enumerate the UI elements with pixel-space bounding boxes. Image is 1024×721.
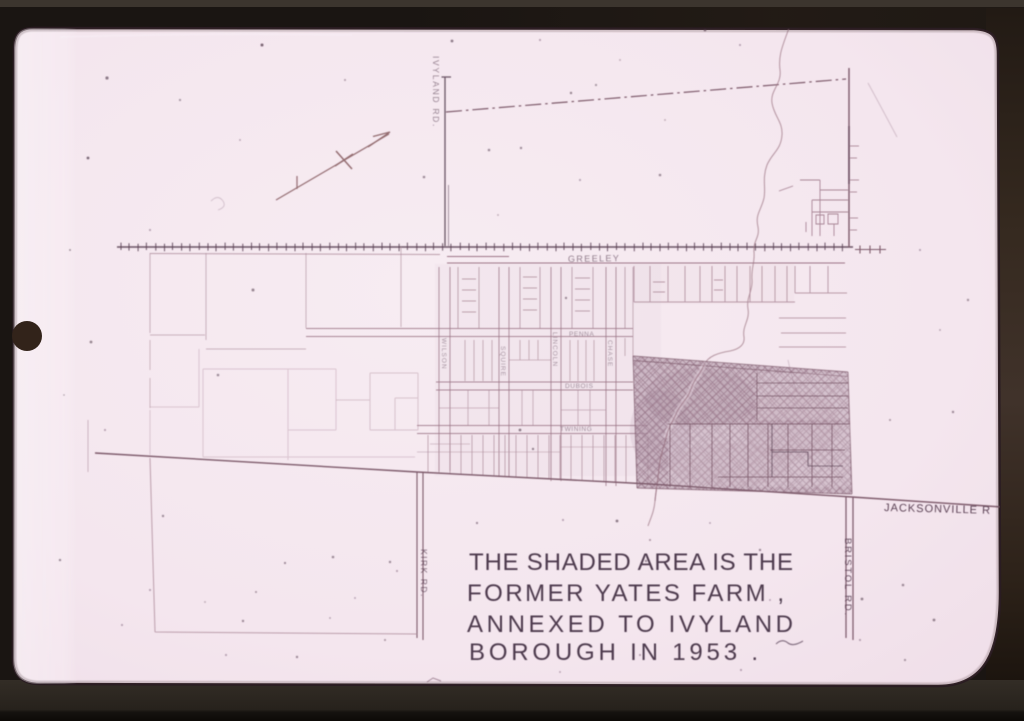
svg-text:ANNEXED TO IVYLAND: ANNEXED TO IVYLAND xyxy=(467,611,793,638)
svg-text:IVYLAND RD.: IVYLAND RD. xyxy=(431,56,441,128)
svg-text:GREELEY: GREELEY xyxy=(568,253,620,264)
svg-text:LINCOLN: LINCOLN xyxy=(551,332,558,367)
svg-text:THE SHADED AREA IS THE: THE SHADED AREA IS THE xyxy=(469,549,793,576)
svg-text:BRISTOL RD.: BRISTOL RD. xyxy=(842,538,853,617)
svg-text:CHASE: CHASE xyxy=(606,340,613,367)
svg-text:WILSON: WILSON xyxy=(440,338,447,370)
svg-text:DUBOIS: DUBOIS xyxy=(565,383,594,390)
svg-text:BOROUGH IN 1953 .: BOROUGH IN 1953 . xyxy=(469,639,758,666)
svg-text:TWINING: TWINING xyxy=(560,426,592,433)
svg-text:FORMER YATES FARM ,: FORMER YATES FARM , xyxy=(467,580,784,607)
svg-text:SQUIRE: SQUIRE xyxy=(499,346,506,377)
svg-text:KIRK RD.: KIRK RD. xyxy=(419,549,429,598)
